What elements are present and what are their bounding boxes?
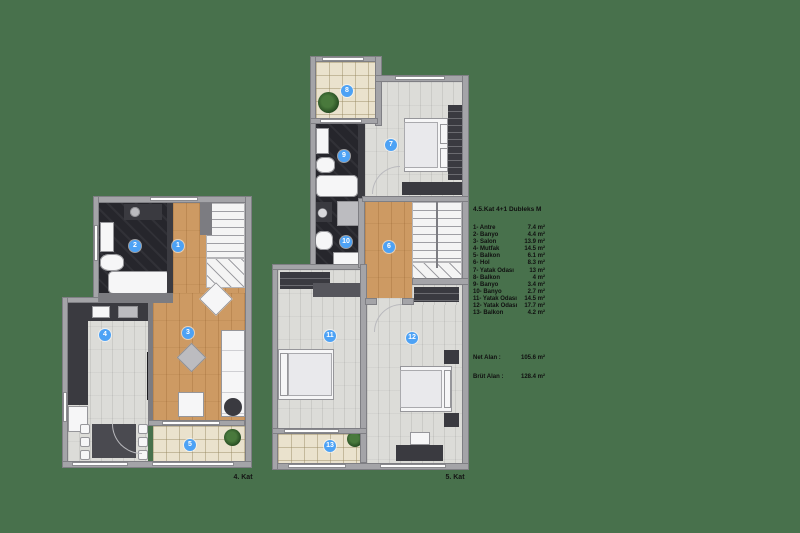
legend-row: 7- Yatak Odası 13 m² xyxy=(473,268,545,275)
pillow xyxy=(440,148,448,168)
net-area-row: Net Alan : 105.6 m² xyxy=(473,354,545,362)
bed-blanket xyxy=(404,122,438,168)
gross-area-label: Brüt Alan : xyxy=(473,373,503,381)
toilet xyxy=(315,231,333,250)
legend-room-label: 12- Yatak Odası xyxy=(473,303,517,310)
nightstand xyxy=(444,413,459,427)
wall xyxy=(310,56,316,268)
net-area-value: 105.6 m² xyxy=(521,354,545,362)
desk-chair xyxy=(410,432,430,445)
legend-room-label: 6- Hol xyxy=(473,260,490,267)
room-badge-yatak12: 12 xyxy=(406,332,418,344)
legend-room-area: 14.5 m² xyxy=(524,296,545,303)
room-badge-balkon8: 8 xyxy=(341,85,353,97)
bed-blanket xyxy=(400,370,442,408)
gross-area-value: 128.4 m² xyxy=(521,373,545,381)
wall xyxy=(272,264,278,470)
balcony-door-window xyxy=(284,429,339,433)
legend-room-label: 11- Yatak Odası xyxy=(473,296,517,303)
legend-room-area: 13 m² xyxy=(529,268,545,275)
legend-row: 13- Balkon 4.2 m² xyxy=(473,310,545,317)
room-badge-balkon13: 13 xyxy=(324,440,336,452)
desk xyxy=(396,445,443,461)
legend-room-label: 8- Balkon xyxy=(473,275,500,282)
legend-room-label: 9- Banyo xyxy=(473,282,498,289)
wardrobe xyxy=(313,283,361,297)
window xyxy=(288,464,346,468)
sink xyxy=(316,128,329,154)
legend-room-area: 3.4 m² xyxy=(528,282,545,289)
legend-room-label: 13- Balkon xyxy=(473,310,503,317)
legend-room-label: 7- Yatak Odası xyxy=(473,268,514,275)
wall xyxy=(358,124,365,198)
window xyxy=(380,464,446,468)
bench xyxy=(402,182,462,195)
stair-railing xyxy=(436,202,438,268)
room-badge-yatak7: 7 xyxy=(385,139,397,151)
room-legend: 4.5.Kat 4+1 Dubleks M 1- Antre 7.4 m² 2-… xyxy=(473,206,545,381)
wall xyxy=(412,278,469,285)
net-area-label: Net Alan : xyxy=(473,354,501,362)
balcony-door-window xyxy=(320,119,362,123)
wardrobe xyxy=(448,105,462,180)
floor-plan-5th-floor: 6 7 8 9 10 11 12 13 5. Kat xyxy=(0,0,800,533)
wardrobe xyxy=(414,287,459,302)
wall xyxy=(358,198,365,268)
bathtub xyxy=(316,175,358,197)
room-badge-yatak11: 11 xyxy=(324,330,336,342)
room-badge-banyo10: 10 xyxy=(340,236,352,248)
legend-room-label: 4- Mutfak xyxy=(473,246,499,253)
room-badge-hol: 6 xyxy=(383,241,395,253)
plan-caption-5kat: 5. Kat xyxy=(425,473,485,482)
window xyxy=(395,76,445,80)
wall xyxy=(272,264,364,270)
bed-blanket xyxy=(288,353,332,396)
legend-room-label: 3- Salon xyxy=(473,239,496,246)
legend-room-area: 8.3 m² xyxy=(528,260,545,267)
window xyxy=(322,57,364,61)
wall xyxy=(402,298,414,305)
legend-row: 10- Banyo 2.7 m² xyxy=(473,289,545,296)
pillow xyxy=(280,353,288,396)
legend-title: 4.5.Kat 4+1 Dubleks M xyxy=(473,206,545,214)
legend-row: 6- Hol 8.3 m² xyxy=(473,260,545,267)
legend-room-label: 10- Banyo xyxy=(473,289,502,296)
wall xyxy=(375,56,382,126)
legend-room-area: 4.2 m² xyxy=(528,310,545,317)
shower xyxy=(337,201,359,226)
legend-row: 9- Banyo 3.4 m² xyxy=(473,282,545,289)
room-badge-banyo9: 9 xyxy=(338,150,350,162)
legend-room-label: 1- Antre xyxy=(473,225,495,232)
legend-room-label: 5- Balkon xyxy=(473,253,500,260)
legend-row: 11- Yatak Odası 14.5 m² xyxy=(473,296,545,303)
legend-room-area: 2.7 m² xyxy=(528,289,545,296)
legend-row: 8- Balkon 4 m² xyxy=(473,275,545,282)
pillow xyxy=(444,370,451,408)
nightstand xyxy=(444,350,459,364)
plant-icon xyxy=(318,92,339,113)
legend-room-area: 4 m² xyxy=(533,275,545,282)
gross-area-row: Brüt Alan : 128.4 m² xyxy=(473,373,545,381)
wall xyxy=(462,75,469,470)
wall xyxy=(365,298,377,305)
wall xyxy=(362,196,469,202)
toilet xyxy=(316,157,335,173)
legend-room-label: 2- Banyo xyxy=(473,232,498,239)
floor-plan-sheet: 1 2 3 4 5 4. Kat xyxy=(0,0,800,533)
pillow xyxy=(440,124,448,144)
